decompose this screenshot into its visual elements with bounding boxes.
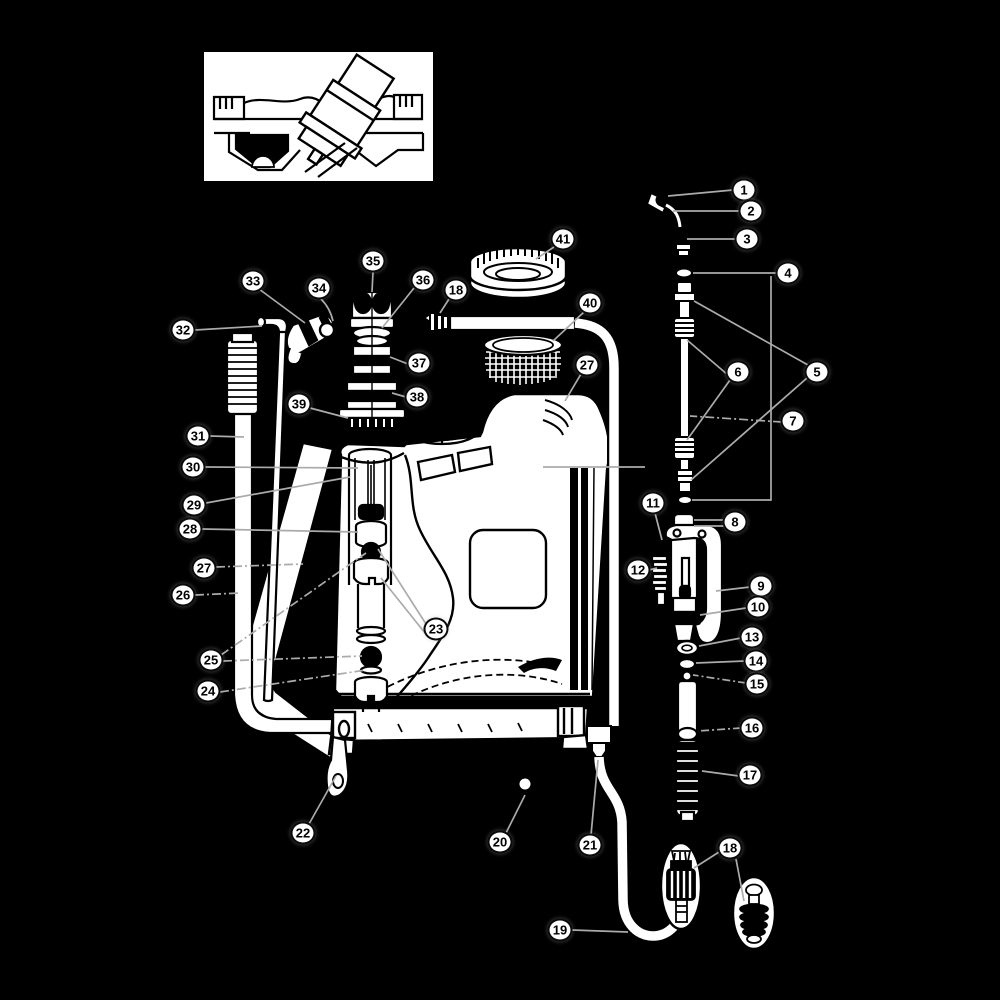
callout-39: 39 (287, 393, 312, 416)
callout-35: 35 (361, 250, 386, 273)
callout-8: 8 (723, 511, 748, 534)
callout-40: 40 (578, 292, 603, 315)
callout-5: 5 (805, 361, 830, 384)
callout-31: 31 (186, 425, 211, 448)
callout-1: 1 (732, 179, 757, 202)
callout-25: 25 (199, 649, 224, 672)
callout-18: 18 (718, 837, 743, 860)
callout-18: 18 (444, 279, 469, 302)
callout-3: 3 (735, 228, 760, 251)
callout-28: 28 (178, 518, 203, 541)
callout-34: 34 (307, 277, 332, 300)
callout-9: 9 (749, 575, 774, 598)
diagram-stage: 1234567891011121314151617181819202122232… (0, 0, 1000, 1000)
callout-15: 15 (745, 673, 770, 696)
callout-17: 17 (738, 764, 763, 787)
callout-32: 32 (171, 319, 196, 342)
callout-19: 19 (548, 919, 573, 942)
callout-37: 37 (407, 352, 432, 375)
callout-20: 20 (488, 831, 513, 854)
callout-11: 11 (641, 492, 666, 515)
callout-33: 33 (241, 270, 266, 293)
callout-23: 23 (424, 618, 449, 641)
callout-36: 36 (411, 269, 436, 292)
callout-10: 10 (746, 596, 771, 619)
callout-41: 41 (551, 228, 576, 251)
callout-29: 29 (182, 494, 207, 517)
callout-24: 24 (196, 680, 221, 703)
callout-6: 6 (726, 361, 751, 384)
callout-21: 21 (578, 834, 603, 857)
callout-7: 7 (781, 410, 806, 433)
callout-26: 26 (171, 584, 196, 607)
callout-22: 22 (291, 822, 316, 845)
callout-27: 27 (192, 557, 217, 580)
callout-14: 14 (744, 650, 769, 673)
callout-layer: 1234567891011121314151617181819202122232… (0, 0, 1000, 1000)
callout-30: 30 (181, 456, 206, 479)
callout-16: 16 (740, 717, 765, 740)
callout-4: 4 (776, 262, 801, 285)
callout-2: 2 (739, 200, 764, 223)
callout-27: 27 (575, 354, 600, 377)
callout-38: 38 (405, 386, 430, 409)
callout-12: 12 (626, 559, 651, 582)
callout-13: 13 (740, 626, 765, 649)
